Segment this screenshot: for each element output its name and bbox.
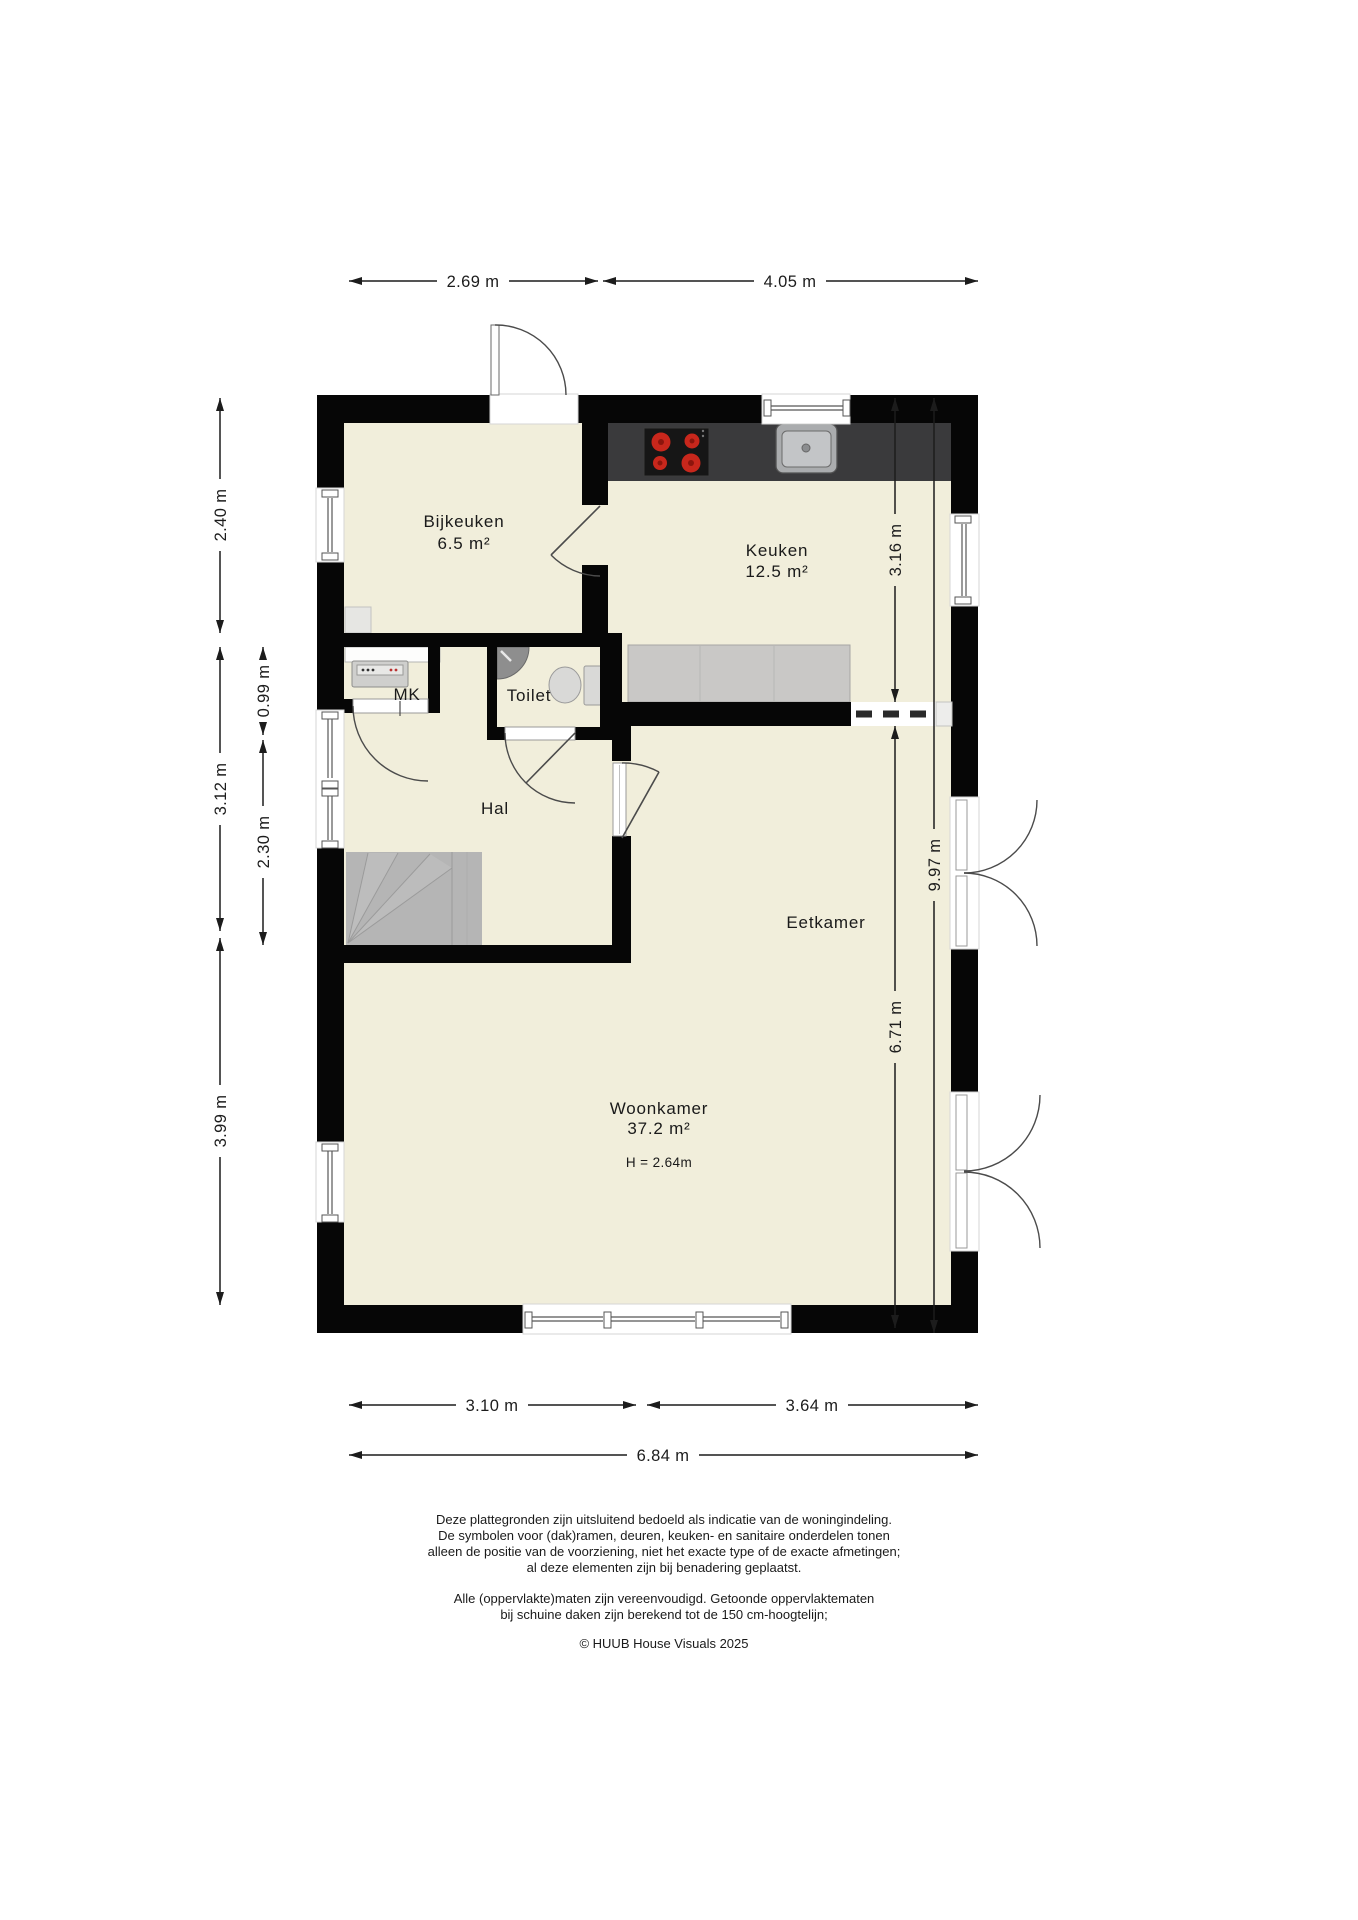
bijkeuken-window — [316, 488, 344, 562]
disclaimer-line: Deze plattegronden zijn uitsluitend bedo… — [0, 1512, 1328, 1528]
woonkamer-bottom-window — [523, 1304, 791, 1334]
dim-right-outer: 9.97 m — [926, 839, 944, 892]
room-area-woonkamer: 37.2 m² — [627, 1119, 690, 1138]
open-passage-dashed — [851, 702, 952, 726]
disclaimer-line: Alle (oppervlakte)maten zijn vereenvoudi… — [0, 1591, 1328, 1607]
stove-icon — [644, 428, 709, 476]
back-door-opening — [490, 394, 578, 424]
copyright-text: © HUUB House Visuals 2025 — [0, 1636, 1328, 1652]
kitchen-right-window — [950, 514, 979, 606]
dim-right-inner-2: 6.71 m — [887, 1001, 905, 1054]
room-label-eetkamer: Eetkamer — [786, 913, 865, 932]
dim-bottom-total: 6.84 m — [637, 1447, 690, 1465]
dim-left-outer-1: 2.40 m — [212, 489, 230, 542]
dim-right-inner-1: 3.16 m — [887, 524, 905, 577]
disclaimer-line: al deze elementen zijn bij benadering ge… — [0, 1560, 1328, 1576]
dim-left-outer-3: 3.99 m — [212, 1095, 230, 1148]
dim-bottom-1: 3.10 m — [466, 1397, 519, 1415]
woonkamer-left-window — [316, 1142, 344, 1222]
dim-left-outer-2: 3.12 m — [212, 763, 230, 816]
room-label-hal: Hal — [481, 799, 509, 818]
room-label-woonkamer: Woonkamer — [610, 1099, 709, 1118]
disclaimer-block: Deze plattegronden zijn uitsluitend bedo… — [0, 1512, 1328, 1652]
room-label-toilet: Toilet — [507, 686, 552, 705]
kitchen-counter-light — [628, 645, 850, 702]
kitchen-top-window — [762, 394, 850, 424]
meter-cabinet-icon — [352, 661, 408, 687]
built-in-cabinet — [345, 647, 440, 662]
dim-left-inner-2: 2.30 m — [255, 816, 273, 869]
hal-double-window — [316, 710, 344, 848]
disclaimer-line: bij schuine daken zijn berekend tot de 1… — [0, 1607, 1328, 1623]
dim-left-inner-1: 0.99 m — [255, 665, 273, 718]
room-area-bijkeuken: 6.5 m² — [438, 534, 491, 553]
dim-bottom-2: 3.64 m — [786, 1397, 839, 1415]
toilet-door — [505, 727, 575, 740]
dim-top-1: 2.69 m — [447, 273, 500, 291]
stairs — [346, 852, 482, 945]
room-label-mk: MK — [393, 685, 420, 704]
room-label-bijkeuken: Bijkeuken — [424, 512, 505, 531]
room-height-woonkamer: H = 2.64m — [626, 1155, 692, 1170]
appliance-square — [345, 607, 371, 633]
room-area-keuken: 12.5 m² — [745, 562, 808, 581]
disclaimer-line: De symbolen voor (dak)ramen, deuren, keu… — [0, 1528, 1328, 1544]
floorplan-page: Bijkeuken 6.5 m² Keuken 12.5 m² MK Toile… — [0, 0, 1358, 1920]
dim-top-2: 4.05 m — [764, 273, 817, 291]
disclaimer-line: alleen de positie van de voorziening, ni… — [0, 1544, 1328, 1560]
room-label-keuken: Keuken — [746, 541, 808, 560]
back-door-leaf — [491, 325, 499, 395]
